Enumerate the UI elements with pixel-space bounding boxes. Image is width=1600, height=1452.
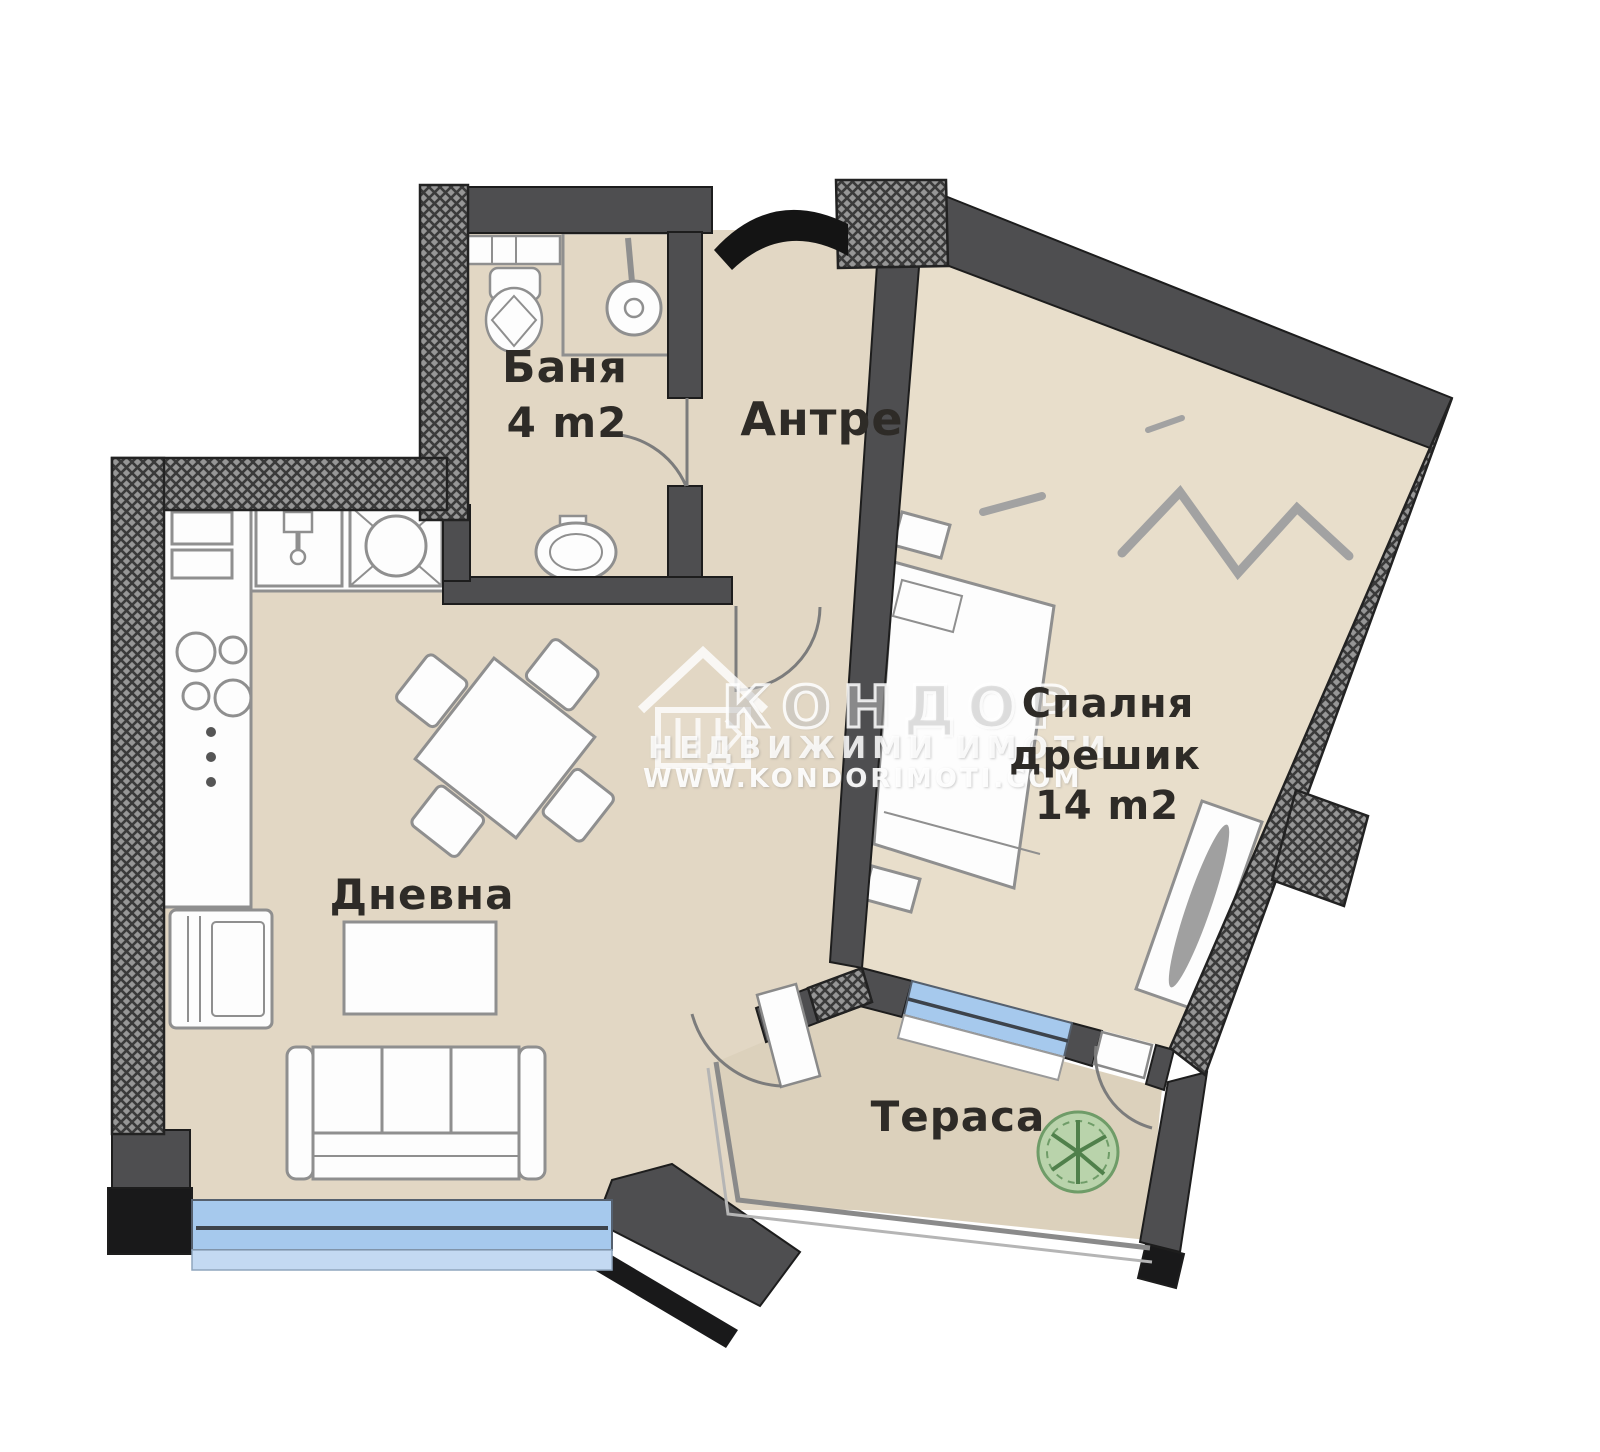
fridge-icon	[172, 550, 232, 578]
living-window	[192, 1200, 612, 1250]
living-label: Дневна	[330, 874, 515, 916]
entrance-column	[836, 180, 948, 268]
armchair	[170, 910, 272, 1028]
wall	[440, 187, 712, 233]
terrace-label: Тераса	[871, 1096, 1046, 1138]
living-window-outer	[192, 1250, 612, 1270]
wall-edge	[108, 1188, 192, 1254]
fridge-icon	[172, 512, 232, 544]
hallway-label: Антре	[740, 396, 903, 442]
bedroom-label: Спалня	[1022, 684, 1195, 724]
bedroom-label-2: дрешик	[1009, 736, 1201, 776]
sofa	[287, 1047, 545, 1179]
bathroom-label: Баня	[502, 346, 628, 390]
wall	[112, 1130, 190, 1188]
coffee-table	[344, 922, 496, 1014]
bathroom-area-label: 4 m2	[507, 402, 628, 444]
kitchen-sink-icon	[256, 508, 342, 586]
plant-icon	[1038, 1112, 1118, 1192]
floor-plan: Баня 4 m2 Антре Спалня дрешик 14 m2 Днев…	[0, 0, 1600, 1452]
wall	[443, 577, 732, 604]
bedroom-area-label: 14 m2	[1035, 786, 1179, 826]
wall-hatched	[112, 458, 164, 1134]
wall	[668, 232, 702, 398]
